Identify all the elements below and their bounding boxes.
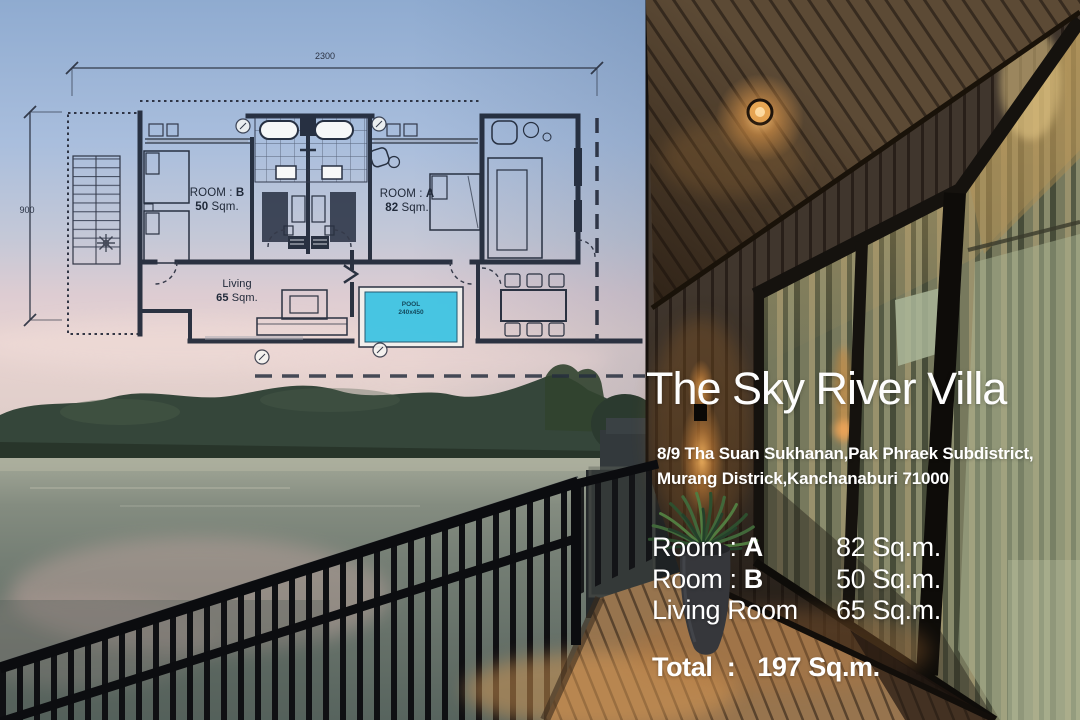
bathtub	[315, 121, 353, 139]
total-area: Total :197 Sq.m.	[652, 652, 880, 683]
area-table: Room : A 82 Sq.m. Room : B 50 Sq.m. Livi…	[652, 532, 952, 627]
living-area: 65	[216, 292, 228, 304]
row-key: A	[744, 532, 763, 562]
plan-dim-height-label: 900	[13, 205, 41, 215]
room-b-unit: Sqm.	[208, 201, 239, 213]
plan-room-b-label: ROOM : B 50 Sqm.	[176, 186, 258, 214]
villa-poster: 2300 900 ROOM : B 50 Sqm. ROOM : A 82 Sq…	[0, 0, 1080, 720]
row-label: Room :	[652, 532, 744, 562]
row-label: Living Room	[652, 595, 798, 625]
pool-name: POOL	[402, 301, 420, 308]
room-b-key: B	[236, 187, 244, 199]
bathtub	[260, 121, 298, 139]
living-name: Living	[222, 278, 251, 290]
plan-dim-width-label: 2300	[300, 51, 350, 61]
plan-pool	[359, 287, 463, 347]
room-a-unit: Sqm.	[398, 202, 429, 214]
plan-living-label: Living 65 Sqm.	[196, 277, 278, 305]
plan-room-a-label: ROOM : A 82 Sqm.	[366, 187, 448, 215]
room-a-key: A	[426, 188, 434, 200]
address-line-2: Murang Districk,Kanchanaburi 71000	[657, 469, 949, 488]
railing-corner-post	[571, 480, 581, 645]
sink	[322, 166, 342, 179]
area-row-room-a: Room : A 82 Sq.m.	[652, 532, 952, 564]
row-label: Room :	[652, 564, 744, 594]
pool-size: 240x450	[398, 309, 423, 316]
row-value: 82 Sq.m.	[836, 532, 941, 563]
room-b-area: 50	[195, 201, 208, 213]
address-line-1: 8/9 Tha Suan Sukhanan,Pak Phraek Subdist…	[657, 444, 1033, 463]
row-key: B	[744, 564, 763, 594]
villa-address: 8/9 Tha Suan Sukhanan,Pak Phraek Subdist…	[657, 441, 1033, 491]
area-row-living: Living Room 65 Sq.m.	[652, 595, 952, 627]
room-a-name: ROOM :	[380, 188, 426, 200]
row-value: 65 Sq.m.	[836, 595, 941, 626]
row-value: 50 Sq.m.	[836, 564, 941, 595]
plan-pool-label: POOL 240x450	[365, 301, 457, 317]
room-a-area: 82	[385, 202, 398, 214]
room-b-name: ROOM :	[190, 187, 236, 199]
total-label: Total :	[652, 652, 735, 682]
villa-title: The Sky River Villa	[646, 363, 1006, 415]
living-unit: Sqm.	[229, 292, 258, 304]
sink	[276, 166, 296, 179]
total-value: 197 Sq.m.	[757, 652, 879, 682]
area-row-room-b: Room : B 50 Sq.m.	[652, 564, 952, 596]
